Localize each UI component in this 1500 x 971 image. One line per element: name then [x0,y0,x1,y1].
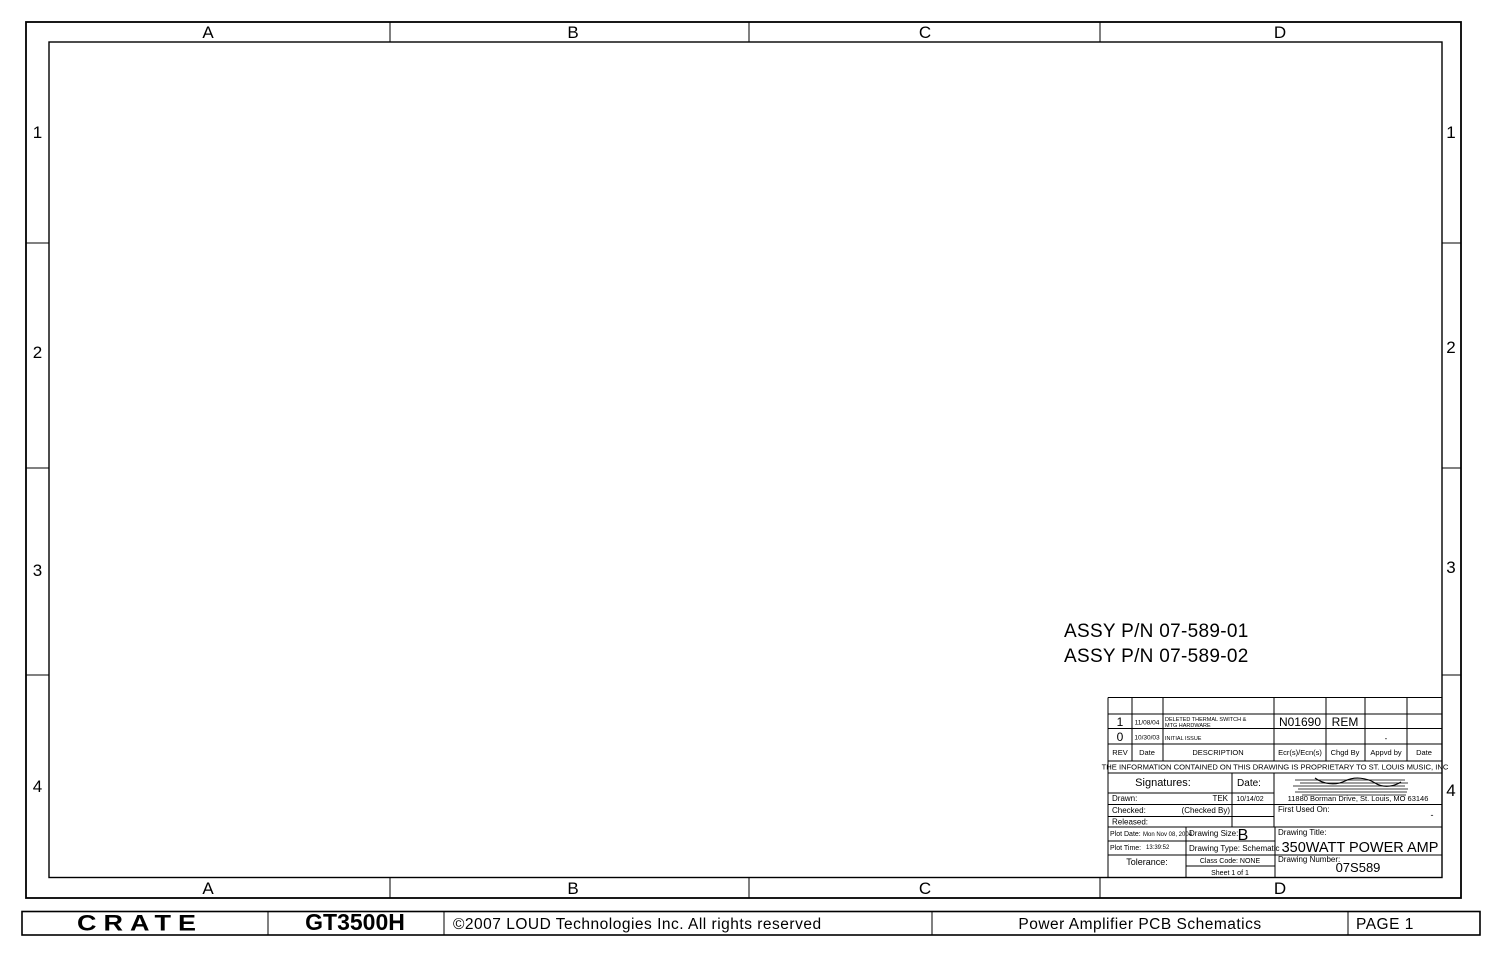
svg-text:D: D [1274,879,1286,898]
svg-text:2: 2 [33,343,42,362]
svg-text:REV: REV [1112,748,1127,757]
svg-text:1: 1 [1446,123,1455,142]
svg-text:Plot Time:: Plot Time: [1110,845,1141,852]
svg-text:Drawing Title:: Drawing Title: [1278,828,1326,837]
svg-text:Ecr(s)/Ecn(s): Ecr(s)/Ecn(s) [1278,748,1322,757]
svg-text:13:39:52: 13:39:52 [1146,845,1170,851]
svg-text:2: 2 [1446,338,1455,357]
svg-text:Tolerance:: Tolerance: [1126,857,1168,867]
svg-text:Drawing Type: Schematic: Drawing Type: Schematic [1189,844,1280,853]
svg-text:B: B [1238,827,1249,844]
svg-text:C: C [919,879,931,898]
svg-text:REM: REM [1332,715,1359,729]
svg-text:B: B [567,23,578,42]
svg-text:0: 0 [1117,730,1124,744]
svg-text:4: 4 [1446,781,1455,800]
svg-text:(Checked By): (Checked By) [1182,806,1231,815]
svg-text:Signatures:: Signatures: [1135,777,1191,789]
svg-text:11880 Borman Drive, St. Louis,: 11880 Borman Drive, St. Louis, MO 63146 [1288,794,1429,803]
svg-text:Sheet 1 of 1: Sheet 1 of 1 [1211,870,1249,877]
svg-text:A: A [202,23,214,42]
svg-text:1: 1 [33,123,42,142]
svg-text:A: A [202,879,214,898]
svg-text:1: 1 [1117,715,1124,729]
svg-text:C: C [919,23,931,42]
svg-text:First Used On:: First Used On: [1278,805,1330,814]
svg-text:INITIAL ISSUE: INITIAL ISSUE [1165,736,1202,742]
svg-text:Released:: Released: [1112,818,1148,827]
svg-text:Drawing Number:: Drawing Number: [1278,855,1340,864]
svg-text:Plot Date:: Plot Date: [1110,831,1141,838]
svg-text:CRATE: CRATE [77,911,203,935]
svg-text:N01690: N01690 [1279,715,1321,729]
svg-text:350WATT POWER AMP: 350WATT POWER AMP [1282,840,1439,856]
svg-text:07S589: 07S589 [1336,860,1381,875]
svg-text:4: 4 [33,777,42,796]
svg-text:ASSY P/N 07-589-01: ASSY P/N 07-589-01 [1064,621,1249,642]
svg-text:Drawing Size:: Drawing Size: [1189,829,1238,838]
svg-text:11/08/04: 11/08/04 [1135,720,1160,727]
svg-text:B: B [567,879,578,898]
svg-text:Class Code: NONE: Class Code: NONE [1200,858,1261,865]
svg-text:10/30/03: 10/30/03 [1134,735,1160,742]
svg-text:Chgd By: Chgd By [1331,748,1360,757]
svg-text:ASSY P/N 07-589-02: ASSY P/N 07-589-02 [1064,646,1249,667]
svg-text:GT3500H: GT3500H [305,909,405,935]
svg-text:MTG HARDWARE: MTG HARDWARE [1165,723,1211,729]
svg-text:10/14/02: 10/14/02 [1236,796,1263,803]
svg-text:3: 3 [1446,558,1455,577]
svg-text:Appvd by: Appvd by [1370,748,1402,757]
svg-text:-: - [1385,734,1388,743]
svg-text:DESCRIPTION: DESCRIPTION [1192,748,1243,757]
svg-text:©2007 LOUD Technologies Inc. A: ©2007 LOUD Technologies Inc. All rights … [453,916,822,933]
svg-text:Checked:: Checked: [1112,806,1146,815]
svg-text:D: D [1274,23,1286,42]
svg-text:Date: Date [1139,748,1155,757]
svg-text:Date: Date [1416,748,1432,757]
svg-text:Drawn:: Drawn: [1112,794,1137,803]
svg-text:3: 3 [33,561,42,580]
svg-text:Mon Nov 08, 2004: Mon Nov 08, 2004 [1143,832,1193,838]
svg-text:Date:: Date: [1237,778,1261,789]
svg-text:TEK: TEK [1212,794,1228,803]
svg-text:PAGE 1: PAGE 1 [1356,916,1414,933]
svg-text:Power Amplifier PCB Schematics: Power Amplifier PCB Schematics [1018,916,1261,933]
svg-text:THE INFORMATION CONTAINED ON T: THE INFORMATION CONTAINED ON THIS DRAWIN… [1102,763,1449,772]
svg-text:-: - [1431,810,1434,820]
